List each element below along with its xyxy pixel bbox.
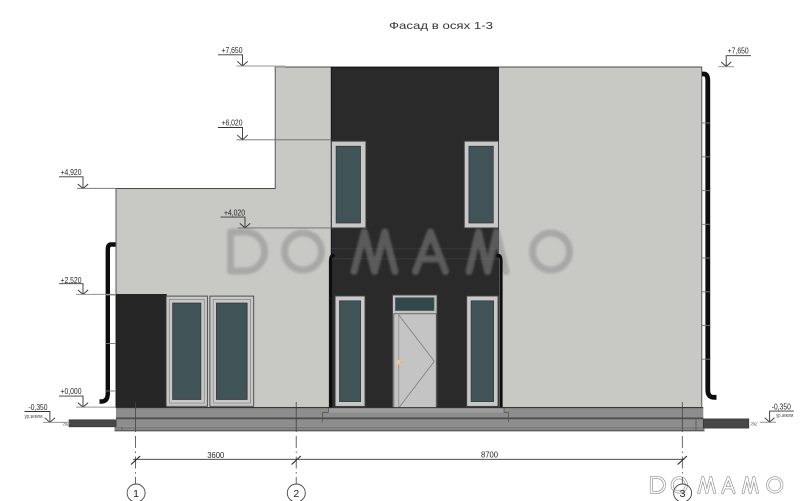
svg-text:8700: 8700 bbox=[481, 450, 498, 460]
svg-text:+0,000: +0,000 bbox=[61, 386, 82, 396]
svg-text:ур.земли: ур.земли bbox=[25, 414, 43, 420]
svg-text:ур.земли: ур.земли bbox=[776, 413, 793, 419]
svg-text:+6,020: +6,020 bbox=[222, 118, 243, 128]
svg-text:Фасад в осях 1-3: Фасад в осях 1-3 bbox=[389, 20, 493, 32]
svg-text:-0,350: -0,350 bbox=[772, 402, 791, 412]
svg-text:3: 3 bbox=[680, 488, 686, 500]
svg-text:+4,920: +4,920 bbox=[61, 167, 82, 177]
svg-text:+7,650: +7,650 bbox=[222, 45, 243, 55]
svg-text:+7,650: +7,650 bbox=[728, 45, 749, 55]
svg-text:3600: 3600 bbox=[207, 450, 224, 460]
svg-text:-0,350: -0,350 bbox=[29, 402, 48, 412]
svg-text:+4,020: +4,020 bbox=[224, 207, 245, 217]
svg-text:2: 2 bbox=[293, 488, 299, 500]
svg-text:1: 1 bbox=[133, 488, 139, 500]
